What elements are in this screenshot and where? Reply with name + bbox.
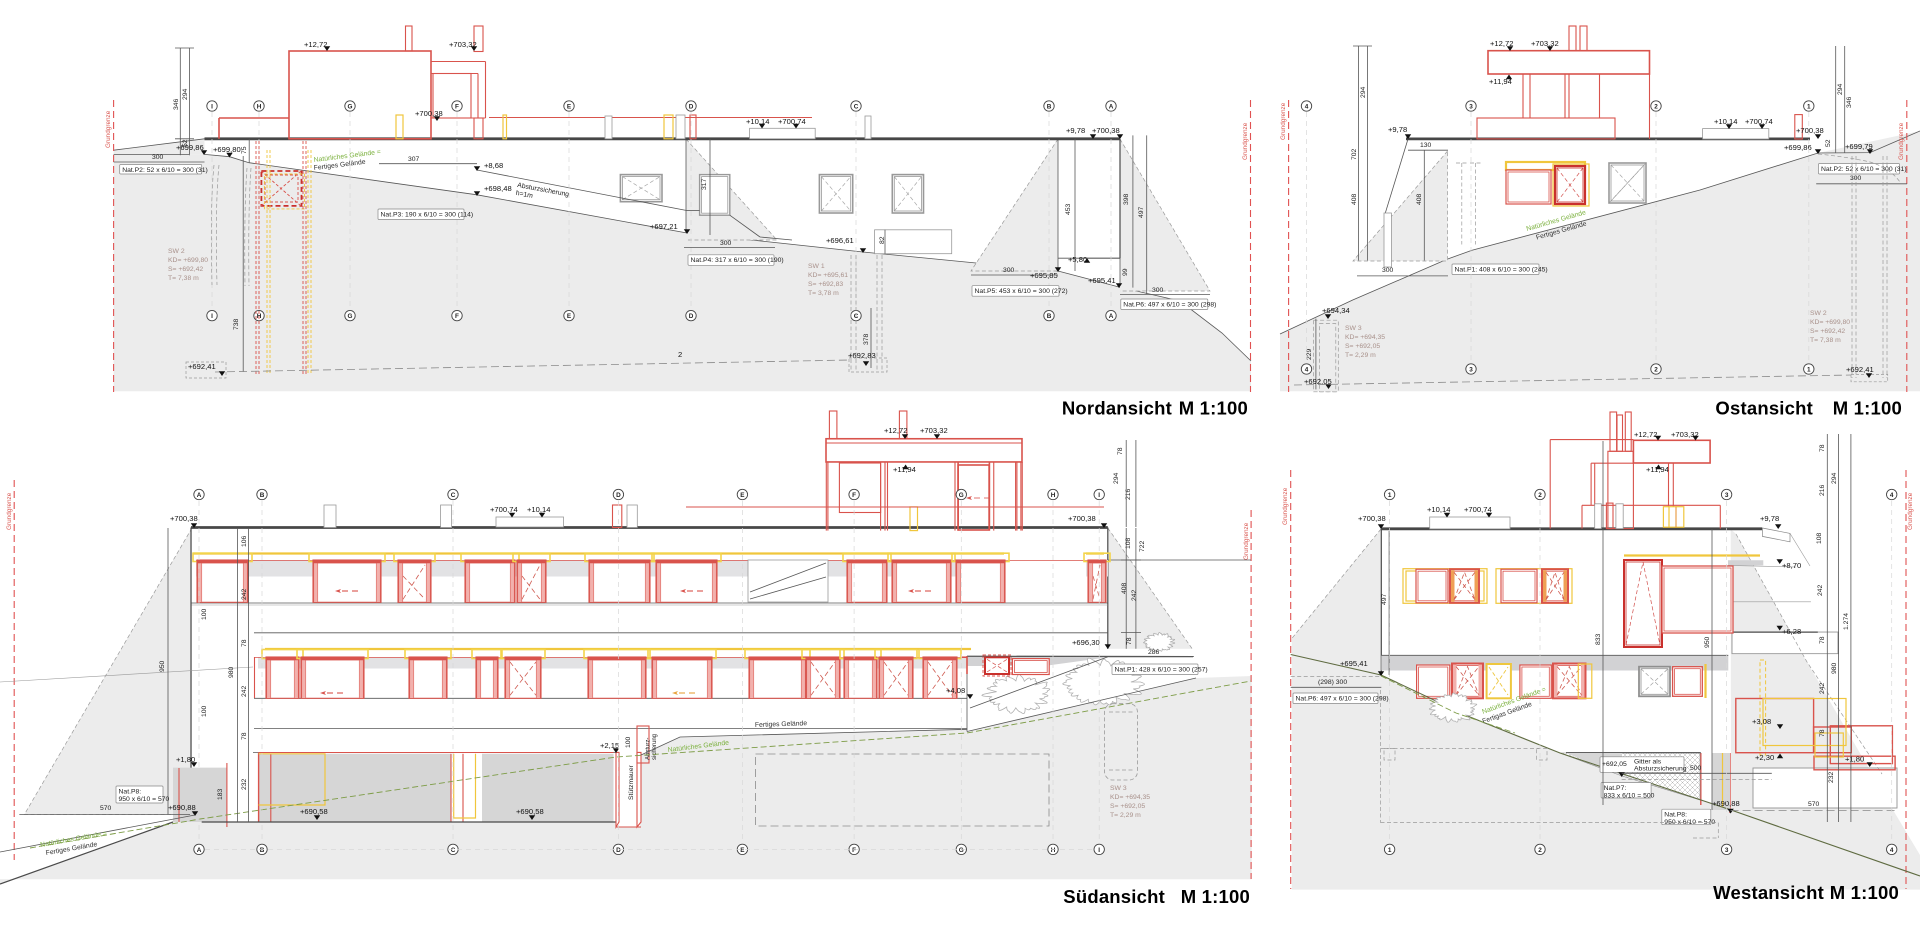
svg-text:+695,85: +695,85: [1030, 271, 1058, 280]
svg-text:+695,41: +695,41: [1088, 276, 1116, 285]
svg-text:738: 738: [233, 318, 240, 330]
svg-text:T= 7,38 m: T= 7,38 m: [168, 275, 199, 282]
svg-text:F: F: [852, 492, 856, 499]
svg-text:950: 950: [159, 660, 166, 672]
svg-text:286: 286: [1148, 649, 1160, 656]
svg-text:+12,72: +12,72: [884, 426, 907, 435]
svg-text:1: 1: [1388, 492, 1392, 499]
svg-text:+700,38: +700,38: [1358, 514, 1386, 523]
svg-text:+12,72: +12,72: [1634, 430, 1657, 439]
svg-text:294: 294: [1837, 83, 1844, 95]
svg-text:3: 3: [1469, 366, 1473, 373]
svg-text:108: 108: [1125, 537, 1132, 549]
svg-text:+700,74: +700,74: [778, 117, 806, 126]
svg-text:F: F: [455, 313, 459, 320]
svg-text:KD= +694,35: KD= +694,35: [1110, 794, 1150, 801]
svg-text:570: 570: [1808, 801, 1820, 808]
svg-text:+9,78: +9,78: [1760, 514, 1779, 523]
svg-text:Nat.P1: 428 x 6/10 = 300 (257): Nat.P1: 428 x 6/10 = 300 (257): [1115, 666, 1208, 673]
svg-text:+696,30: +696,30: [1072, 638, 1100, 647]
svg-text:+700,74: +700,74: [1464, 505, 1492, 514]
svg-text:+8,70: +8,70: [1782, 561, 1801, 570]
svg-text:+690,88: +690,88: [168, 803, 196, 812]
svg-text:398: 398: [1123, 193, 1130, 205]
svg-text:Westansicht: Westansicht: [1713, 882, 1824, 903]
svg-text:C: C: [854, 103, 859, 110]
svg-text:4: 4: [1890, 847, 1894, 854]
svg-text:+703,32: +703,32: [920, 426, 948, 435]
svg-text:+692,41: +692,41: [188, 362, 216, 371]
svg-text:950: 950: [1704, 636, 1711, 648]
svg-text:Grundgrenze: Grundgrenze: [1280, 102, 1287, 140]
svg-text:sicherung: sicherung: [652, 734, 658, 760]
svg-text:99: 99: [1122, 268, 1129, 276]
svg-text:Südansicht: Südansicht: [1063, 886, 1165, 907]
svg-text:Grundgrenze: Grundgrenze: [1242, 122, 1249, 160]
svg-text:S= +692,83: S= +692,83: [808, 281, 843, 288]
svg-text:T= 3,78 m: T= 3,78 m: [808, 290, 839, 297]
svg-text:570: 570: [100, 805, 112, 812]
svg-text:H: H: [1051, 847, 1056, 854]
svg-text:+12,72: +12,72: [304, 40, 327, 49]
svg-text:722: 722: [1139, 540, 1146, 552]
svg-text:1: 1: [1807, 366, 1811, 373]
svg-text:T= 7,38 m: T= 7,38 m: [1810, 337, 1841, 344]
svg-text:+9,78: +9,78: [1066, 126, 1085, 135]
svg-text:106: 106: [241, 535, 248, 547]
svg-text:408: 408: [1416, 193, 1423, 205]
svg-text:+1,80: +1,80: [1845, 755, 1864, 764]
svg-text:+690,58: +690,58: [516, 807, 544, 816]
svg-text:B: B: [1047, 103, 1052, 110]
svg-text:+696,61: +696,61: [826, 236, 854, 245]
svg-text:294: 294: [1113, 472, 1120, 484]
svg-text:D: D: [616, 847, 621, 854]
svg-text:300: 300: [720, 240, 732, 247]
svg-text:242: 242: [241, 588, 248, 600]
svg-text:78: 78: [241, 639, 248, 647]
svg-text:A: A: [1109, 103, 1114, 110]
svg-text:3: 3: [1469, 103, 1473, 110]
svg-text:497: 497: [1381, 593, 1388, 605]
svg-text:+699,86: +699,86: [1784, 143, 1812, 152]
svg-text:3: 3: [1725, 847, 1729, 854]
svg-text:M 1:100: M 1:100: [1179, 398, 1248, 419]
svg-text:+703,32: +703,32: [1531, 39, 1559, 48]
svg-text:Nat.P5: 453 x 6/10 = 300 (272): Nat.P5: 453 x 6/10 = 300 (272): [975, 288, 1068, 295]
svg-text:242: 242: [1131, 589, 1138, 601]
svg-text:S= +692,42: S= +692,42: [168, 266, 203, 273]
svg-text:SW 3: SW 3: [1345, 325, 1362, 332]
svg-text:242: 242: [1819, 682, 1826, 694]
svg-text:833 x 6/10 = 500: 833 x 6/10 = 500: [1604, 793, 1655, 800]
svg-text:I: I: [1098, 492, 1100, 499]
svg-text:Absturzsicherung: Absturzsicherung: [1634, 766, 1687, 773]
svg-text:346: 346: [1846, 96, 1853, 108]
svg-text:2: 2: [1654, 366, 1658, 373]
svg-text:+4,08: +4,08: [946, 686, 965, 695]
svg-text:+690,58: +690,58: [300, 807, 328, 816]
svg-text:4: 4: [1305, 366, 1309, 373]
svg-text:+699,80: +699,80: [213, 145, 241, 154]
svg-text:833: 833: [1595, 633, 1602, 645]
svg-text:A: A: [197, 847, 202, 854]
svg-text:2: 2: [1538, 847, 1542, 854]
svg-text:+10,14: +10,14: [746, 117, 769, 126]
svg-text:+700,74: +700,74: [1745, 117, 1773, 126]
svg-text:S= +692,05: S= +692,05: [1110, 803, 1145, 810]
svg-text:SW 2: SW 2: [1810, 310, 1827, 317]
svg-text:S= +692,42: S= +692,42: [1810, 328, 1845, 335]
svg-text:H: H: [257, 103, 262, 110]
svg-text:SW 3: SW 3: [1110, 785, 1127, 792]
svg-text:Nordansicht: Nordansicht: [1062, 398, 1172, 419]
svg-text:Grundgrenze: Grundgrenze: [1282, 487, 1289, 525]
svg-text:1.274: 1.274: [1843, 613, 1850, 630]
svg-text:Grundgrenze: Grundgrenze: [1907, 492, 1914, 530]
svg-text:Nat.P2: 52 x 6/10 = 300 (31): Nat.P2: 52 x 6/10 = 300 (31): [122, 167, 208, 174]
svg-text:B: B: [260, 492, 265, 499]
svg-text:Nat.P2: 52 x 6/10 = 300 (31): Nat.P2: 52 x 6/10 = 300 (31): [1821, 166, 1907, 173]
svg-text:F: F: [455, 103, 459, 110]
svg-text:G: G: [959, 492, 964, 499]
svg-text:294: 294: [182, 88, 189, 100]
svg-text:108: 108: [1816, 532, 1823, 544]
svg-text:M 1:100: M 1:100: [1181, 886, 1250, 907]
svg-text:Grundgrenze: Grundgrenze: [1898, 122, 1905, 160]
svg-text:G: G: [348, 313, 353, 320]
svg-text:A: A: [1109, 313, 1114, 320]
svg-text:D: D: [689, 313, 694, 320]
svg-text:78: 78: [1117, 447, 1124, 455]
svg-text:D: D: [616, 492, 621, 499]
svg-text:500: 500: [1690, 765, 1702, 772]
svg-text:Nat.P8:: Nat.P8:: [119, 788, 142, 795]
svg-text:+9,78: +9,78: [1388, 125, 1407, 134]
svg-text:+700,38: +700,38: [170, 514, 198, 523]
svg-text:52: 52: [182, 139, 189, 147]
svg-text:C: C: [451, 492, 456, 499]
svg-text:242: 242: [1817, 584, 1824, 596]
svg-text:E: E: [740, 847, 745, 854]
svg-text:+8,68: +8,68: [484, 161, 503, 170]
svg-text:183: 183: [217, 788, 224, 800]
svg-text:+11,94: +11,94: [1646, 465, 1669, 474]
svg-text:4: 4: [1305, 103, 1309, 110]
svg-text:KD= +699,80: KD= +699,80: [1810, 319, 1850, 326]
svg-text:950 x 6/10 = 570: 950 x 6/10 = 570: [119, 796, 170, 803]
svg-text:D: D: [689, 103, 694, 110]
svg-text:E: E: [740, 492, 745, 499]
svg-text:300: 300: [1382, 267, 1394, 274]
svg-text:+700,38: +700,38: [1068, 514, 1096, 523]
svg-text:F: F: [852, 847, 856, 854]
svg-text:52: 52: [1825, 139, 1832, 147]
svg-text:Grundgrenze: Grundgrenze: [105, 110, 112, 148]
svg-text:702: 702: [1351, 148, 1358, 160]
svg-text:+690,88: +690,88: [1712, 799, 1740, 808]
svg-text:100: 100: [201, 705, 208, 717]
svg-text:+11,94: +11,94: [893, 465, 916, 474]
svg-text:100: 100: [625, 736, 632, 748]
svg-text:232: 232: [241, 778, 248, 790]
svg-text:3: 3: [1725, 492, 1729, 499]
svg-text:Nat.P1: 408 x 6/10 = 300 (245): Nat.P1: 408 x 6/10 = 300 (245): [1455, 266, 1548, 273]
svg-text:+11,94: +11,94: [1489, 77, 1512, 86]
svg-text:294: 294: [1360, 86, 1367, 98]
svg-text:2: 2: [1538, 492, 1542, 499]
svg-text:B: B: [260, 847, 265, 854]
svg-text:453: 453: [1065, 203, 1072, 215]
svg-text:+692,05: +692,05: [1602, 761, 1627, 768]
svg-text:300: 300: [152, 154, 164, 161]
svg-text:300: 300: [1003, 267, 1015, 274]
svg-text:294: 294: [1831, 472, 1838, 484]
svg-text:497: 497: [1138, 206, 1145, 218]
svg-text:C: C: [451, 847, 456, 854]
svg-text:Nat.P4: 317 x 6/10 = 300 (190): Nat.P4: 317 x 6/10 = 300 (190): [691, 257, 784, 264]
svg-text:300: 300: [1152, 287, 1164, 294]
svg-text:T= 2,29 m: T= 2,29 m: [1110, 812, 1141, 819]
svg-text:1: 1: [1807, 103, 1811, 110]
svg-text:Nat.P3: 190 x 6/10 = 300 (114): Nat.P3: 190 x 6/10 = 300 (114): [381, 211, 474, 218]
svg-text:Nat.P6: 497 x 6/10 = 300 (298): Nat.P6: 497 x 6/10 = 300 (298): [1296, 695, 1389, 702]
svg-text:+700,38: +700,38: [1796, 126, 1824, 135]
svg-text:378: 378: [863, 333, 870, 345]
svg-text:980: 980: [228, 666, 235, 678]
svg-text:SW 2: SW 2: [168, 248, 185, 255]
svg-text:242: 242: [241, 685, 248, 697]
svg-text:2: 2: [678, 350, 682, 359]
svg-text:I: I: [211, 313, 213, 320]
svg-text:M 1:100: M 1:100: [1830, 882, 1899, 903]
svg-text:+692,41: +692,41: [1846, 365, 1874, 374]
svg-text:Grundgrenze: Grundgrenze: [6, 492, 13, 530]
svg-text:130: 130: [1420, 142, 1432, 149]
svg-text:Nat.P8:: Nat.P8:: [1664, 812, 1687, 819]
svg-text:+694,34: +694,34: [1322, 306, 1350, 315]
svg-text:100: 100: [201, 608, 208, 620]
svg-text:+3,08: +3,08: [1752, 717, 1771, 726]
svg-text:Gitter als: Gitter als: [1634, 759, 1662, 766]
svg-text:Ostansicht: Ostansicht: [1715, 398, 1813, 419]
svg-text:+698,48: +698,48: [484, 184, 512, 193]
svg-text:Absturz-: Absturz-: [646, 738, 652, 760]
svg-text:1: 1: [1388, 847, 1392, 854]
svg-text:346: 346: [173, 98, 180, 110]
svg-text:78: 78: [241, 732, 248, 740]
svg-text:78: 78: [1126, 637, 1133, 645]
svg-text:I: I: [211, 103, 213, 110]
svg-text:KD= +695,61: KD= +695,61: [808, 272, 848, 279]
svg-text:+695,41: +695,41: [1340, 659, 1368, 668]
svg-text:B: B: [1047, 313, 1052, 320]
svg-text:+10,14: +10,14: [527, 505, 550, 514]
svg-text:I: I: [1098, 847, 1100, 854]
svg-text:+692,83: +692,83: [848, 351, 876, 360]
svg-text:G: G: [348, 103, 353, 110]
svg-text:232: 232: [1828, 771, 1835, 783]
svg-text:KD= +699,80: KD= +699,80: [168, 257, 208, 264]
svg-text:Stützmauer: Stützmauer: [628, 765, 635, 800]
svg-text:307: 307: [408, 156, 420, 163]
svg-text:+10,14: +10,14: [1427, 505, 1450, 514]
svg-text:2: 2: [1654, 103, 1658, 110]
svg-text:SW 1: SW 1: [808, 263, 825, 270]
svg-text:75: 75: [241, 146, 248, 154]
svg-text:S= +692,05: S= +692,05: [1345, 343, 1380, 350]
svg-text:4: 4: [1890, 492, 1894, 499]
svg-text:Nat.P6: 497 x 6/10 = 300 (298): Nat.P6: 497 x 6/10 = 300 (298): [1123, 301, 1216, 308]
svg-text:E: E: [567, 313, 572, 320]
svg-text:KD= +694,35: KD= +694,35: [1345, 334, 1385, 341]
svg-text:+700,74: +700,74: [490, 505, 518, 514]
svg-text:980: 980: [1831, 662, 1838, 674]
svg-text:216: 216: [1819, 484, 1826, 496]
svg-text:78: 78: [1819, 729, 1826, 737]
svg-text:(298) 300: (298) 300: [1318, 679, 1347, 686]
svg-text:408: 408: [1351, 193, 1358, 205]
svg-text:Nat.P7:: Nat.P7:: [1604, 785, 1627, 792]
svg-text:+6,28: +6,28: [1782, 627, 1801, 636]
svg-text:E: E: [567, 103, 572, 110]
svg-text:G: G: [959, 847, 964, 854]
svg-text:M 1:100: M 1:100: [1833, 398, 1902, 419]
svg-text:78: 78: [1819, 636, 1826, 644]
svg-text:Grundgrenze: Grundgrenze: [1243, 522, 1250, 560]
svg-text:+700,38: +700,38: [1092, 126, 1120, 135]
svg-text:408: 408: [1121, 582, 1128, 594]
svg-text:H: H: [1051, 492, 1056, 499]
svg-text:T= 2,29 m: T= 2,29 m: [1345, 352, 1376, 359]
svg-text:317: 317: [701, 178, 708, 190]
svg-text:+10,14: +10,14: [1714, 117, 1737, 126]
svg-text:229: 229: [1306, 348, 1313, 360]
svg-text:A: A: [197, 492, 202, 499]
svg-text:+2,30: +2,30: [1755, 753, 1774, 762]
svg-text:+697,21: +697,21: [650, 222, 678, 231]
svg-text:78: 78: [1819, 444, 1826, 452]
